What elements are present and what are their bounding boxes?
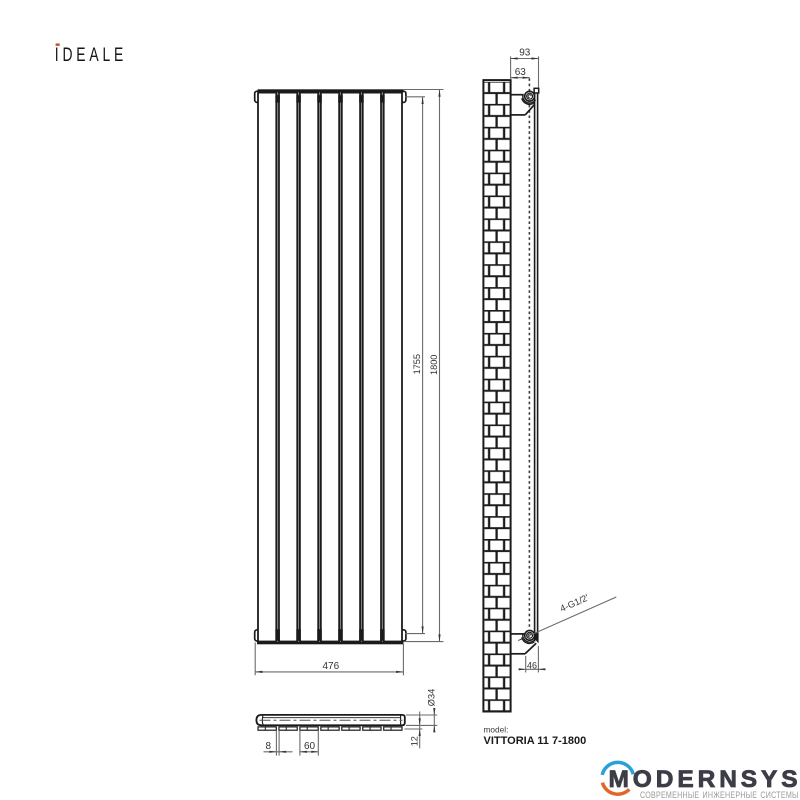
svg-text:Ø34: Ø34 bbox=[426, 689, 436, 706]
svg-text:12: 12 bbox=[410, 736, 420, 746]
svg-text:46: 46 bbox=[527, 660, 537, 670]
svg-text:model:: model: bbox=[484, 725, 509, 735]
svg-text:63: 63 bbox=[515, 67, 527, 78]
svg-text:IDEALE: IDEALE bbox=[55, 44, 127, 66]
svg-text:1800: 1800 bbox=[429, 355, 439, 375]
svg-text:60: 60 bbox=[304, 741, 316, 752]
svg-text:476: 476 bbox=[322, 661, 339, 672]
svg-text:СОВРЕМЕННЫЕ ИНЖЕНЕРНЫЕ СИСТЕМЫ: СОВРЕМЕННЫЕ ИНЖЕНЕРНЫЕ СИСТЕМЫ bbox=[640, 790, 799, 800]
svg-text:8: 8 bbox=[266, 741, 272, 752]
svg-text:MODERNSYS: MODERNSYS bbox=[609, 766, 800, 793]
svg-text:VITTORIA 11 7-1800: VITTORIA 11 7-1800 bbox=[484, 735, 587, 747]
svg-text:1755: 1755 bbox=[412, 354, 422, 374]
svg-text:93: 93 bbox=[519, 48, 531, 59]
